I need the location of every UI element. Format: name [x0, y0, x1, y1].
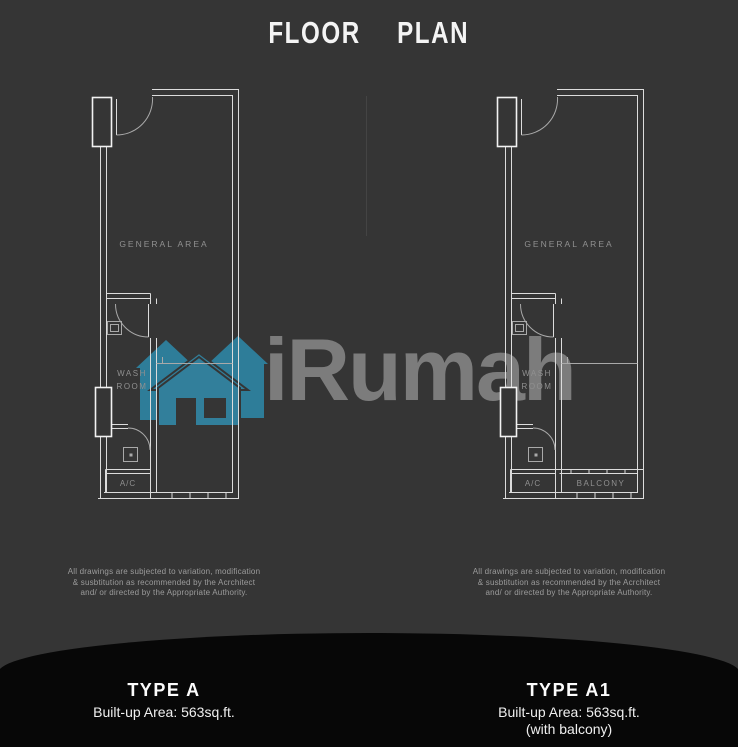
wash-room-line1: WASH — [509, 367, 565, 380]
disclaimer-line: and/ or directed by the Appropriate Auth… — [34, 588, 294, 599]
room-label-general-area: GENERAL AREA — [493, 238, 645, 251]
room-label-ac: A/C — [510, 477, 556, 490]
type-a-name: TYPE A — [44, 680, 284, 701]
room-label-wash-room: WASH ROOM — [509, 367, 565, 393]
type-a1-caption: TYPE A1 Built-up Area: 563sq.ft. (with b… — [449, 680, 689, 737]
floor-plan-a1-linework — [493, 88, 645, 500]
room-label-wash-room: WASH ROOM — [104, 367, 160, 393]
type-a1-name: TYPE A1 — [449, 680, 689, 701]
faint-fold-line — [366, 96, 367, 236]
disclaimer-line: and/ or directed by the Appropriate Auth… — [439, 588, 699, 599]
room-label-ac: A/C — [105, 477, 151, 490]
disclaimer-type-a: All drawings are subjected to variation,… — [34, 567, 294, 599]
room-label-balcony: BALCONY — [557, 477, 645, 490]
disclaimer-type-a1: All drawings are subjected to variation,… — [439, 567, 699, 599]
type-a1-note: (with balcony) — [449, 721, 689, 737]
type-a-caption: TYPE A Built-up Area: 563sq.ft. — [44, 680, 284, 720]
wash-room-line1: WASH — [104, 367, 160, 380]
type-a1-area: Built-up Area: 563sq.ft. — [449, 704, 689, 720]
disclaimer-line: & susbtitution as recommended by the Acr… — [439, 578, 699, 589]
disclaimer-line: All drawings are subjected to variation,… — [439, 567, 699, 578]
floor-plan-page: FLOOR PLAN iRumah — [0, 0, 738, 747]
page-title-text: FLOOR PLAN — [269, 14, 470, 52]
room-label-general-area: GENERAL AREA — [88, 238, 240, 251]
wash-room-line2: ROOM — [509, 380, 565, 393]
floor-plan-a-linework — [88, 88, 240, 500]
disclaimer-line: All drawings are subjected to variation,… — [34, 567, 294, 578]
floor-plan-type-a: GENERAL AREA WASH ROOM A/C — [88, 88, 240, 500]
disclaimer-line: & susbtitution as recommended by the Acr… — [34, 578, 294, 589]
type-a-area: Built-up Area: 563sq.ft. — [44, 704, 284, 720]
floor-plan-type-a1: GENERAL AREA WASH ROOM A/C BALCONY — [493, 88, 645, 500]
page-title: FLOOR PLAN — [0, 14, 738, 52]
wash-room-line2: ROOM — [104, 380, 160, 393]
